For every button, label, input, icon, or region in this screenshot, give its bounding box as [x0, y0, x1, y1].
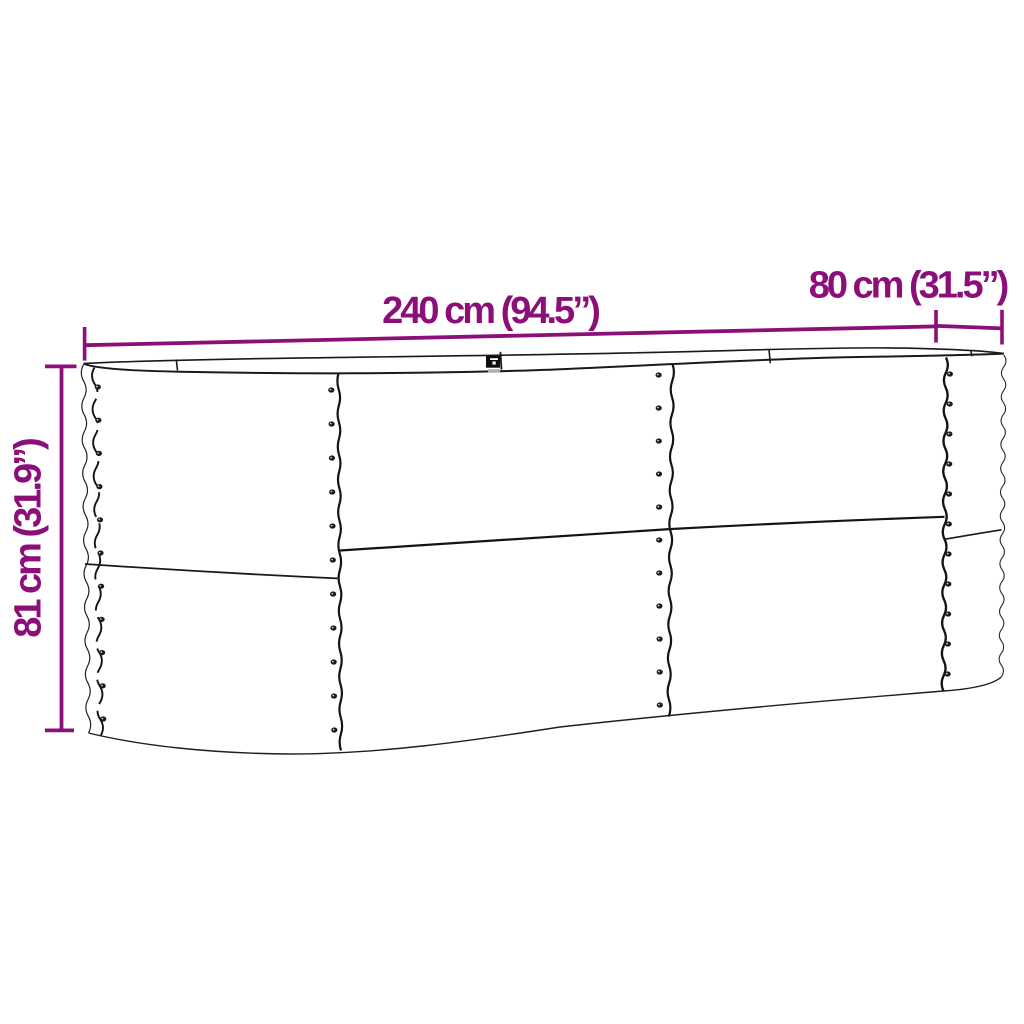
- svg-text:240 cm (94.5”): 240 cm (94.5”): [382, 290, 599, 332]
- svg-text:80 cm (31.5”): 80 cm (31.5”): [809, 265, 1008, 307]
- svg-text:81 cm (31.9”): 81 cm (31.9”): [8, 439, 50, 638]
